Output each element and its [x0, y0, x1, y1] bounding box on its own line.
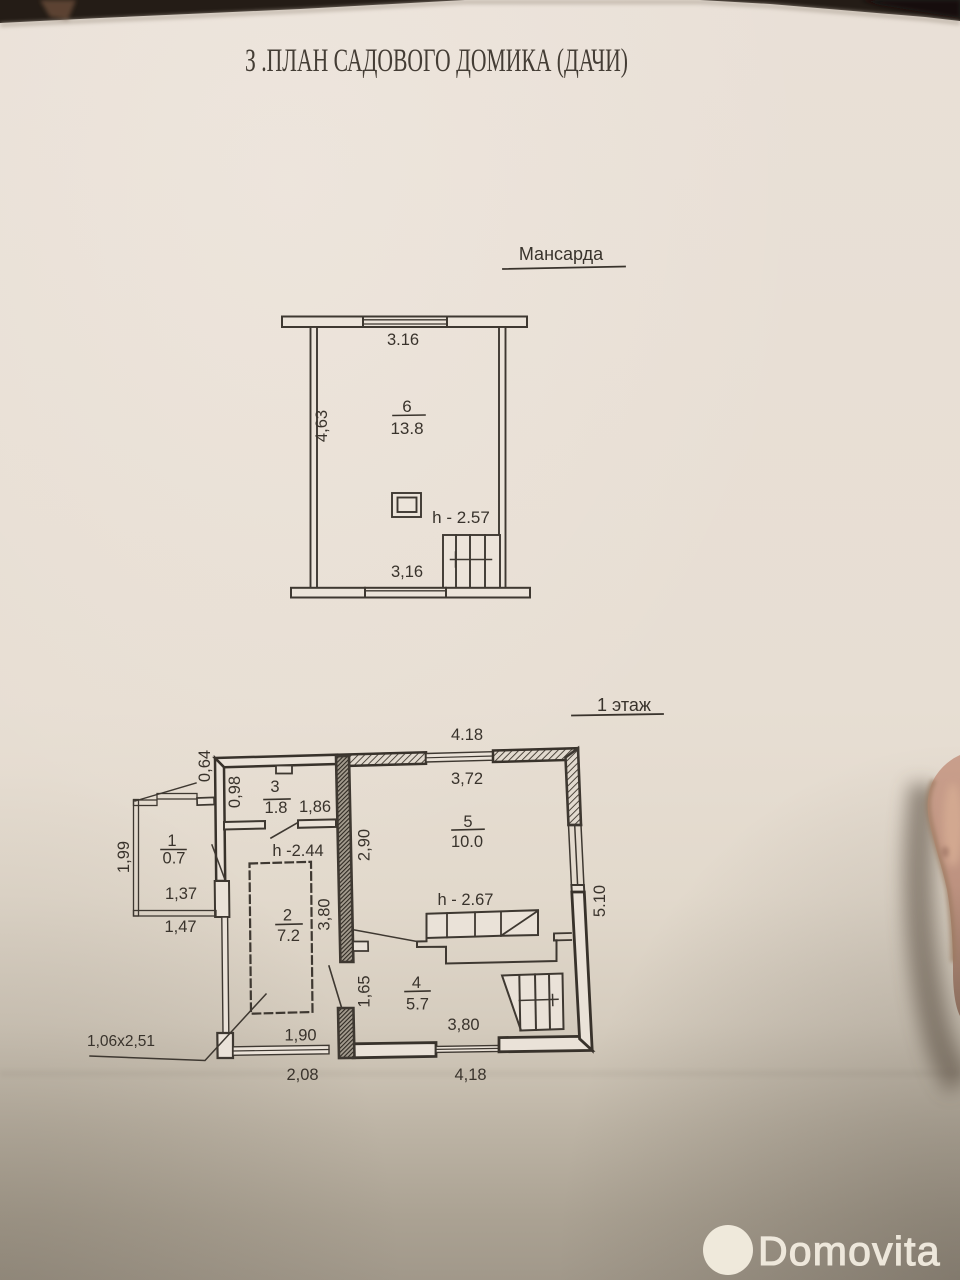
svg-text:3,80: 3,80 — [316, 898, 334, 930]
svg-text:1,37: 1,37 — [165, 885, 197, 903]
svg-text:3,16: 3,16 — [391, 563, 423, 581]
svg-text:2,90: 2,90 — [356, 829, 374, 861]
svg-text:Domovita: Domovita — [758, 1228, 941, 1274]
svg-text:4,63: 4,63 — [313, 410, 331, 442]
svg-text:10.0: 10.0 — [451, 833, 483, 851]
svg-text:7.2: 7.2 — [277, 927, 300, 945]
svg-text:2: 2 — [283, 907, 292, 925]
svg-text:1 этаж: 1 этаж — [597, 695, 651, 715]
svg-text:1,06х2,51: 1,06х2,51 — [87, 1033, 155, 1050]
svg-text:1,99: 1,99 — [115, 841, 133, 873]
svg-text:0,98: 0,98 — [226, 776, 244, 808]
svg-text:h - 2.67: h - 2.67 — [438, 891, 494, 909]
svg-text:З .ПЛАН САДОВОГО ДОМИКА (ДАЧИ): З .ПЛАН САДОВОГО ДОМИКА (ДАЧИ) — [245, 43, 628, 79]
svg-text:1: 1 — [167, 832, 176, 850]
svg-text:4.18: 4.18 — [451, 726, 483, 744]
svg-text:3,72: 3,72 — [451, 770, 483, 788]
svg-text:1,86: 1,86 — [299, 798, 331, 816]
svg-text:3: 3 — [270, 778, 279, 796]
svg-text:5.7: 5.7 — [406, 996, 429, 1014]
svg-text:1,90: 1,90 — [284, 1027, 316, 1045]
svg-text:4: 4 — [412, 974, 421, 992]
svg-text:3,80: 3,80 — [447, 1016, 479, 1034]
svg-text:Мансарда: Мансарда — [519, 244, 604, 264]
svg-text:13.8: 13.8 — [390, 419, 423, 438]
svg-text:5: 5 — [463, 813, 472, 831]
svg-text:h - 2.57: h - 2.57 — [432, 508, 490, 527]
svg-text:0,64: 0,64 — [196, 750, 214, 782]
svg-text:3.16: 3.16 — [387, 331, 419, 349]
svg-text:1.8: 1.8 — [265, 799, 288, 817]
svg-text:5.10: 5.10 — [591, 885, 609, 917]
svg-text:0.7: 0.7 — [163, 850, 186, 868]
svg-text:h -2.44: h -2.44 — [272, 842, 323, 860]
svg-text:1,65: 1,65 — [356, 975, 374, 1007]
svg-text:1,47: 1,47 — [164, 918, 196, 936]
svg-text:6: 6 — [402, 397, 411, 416]
